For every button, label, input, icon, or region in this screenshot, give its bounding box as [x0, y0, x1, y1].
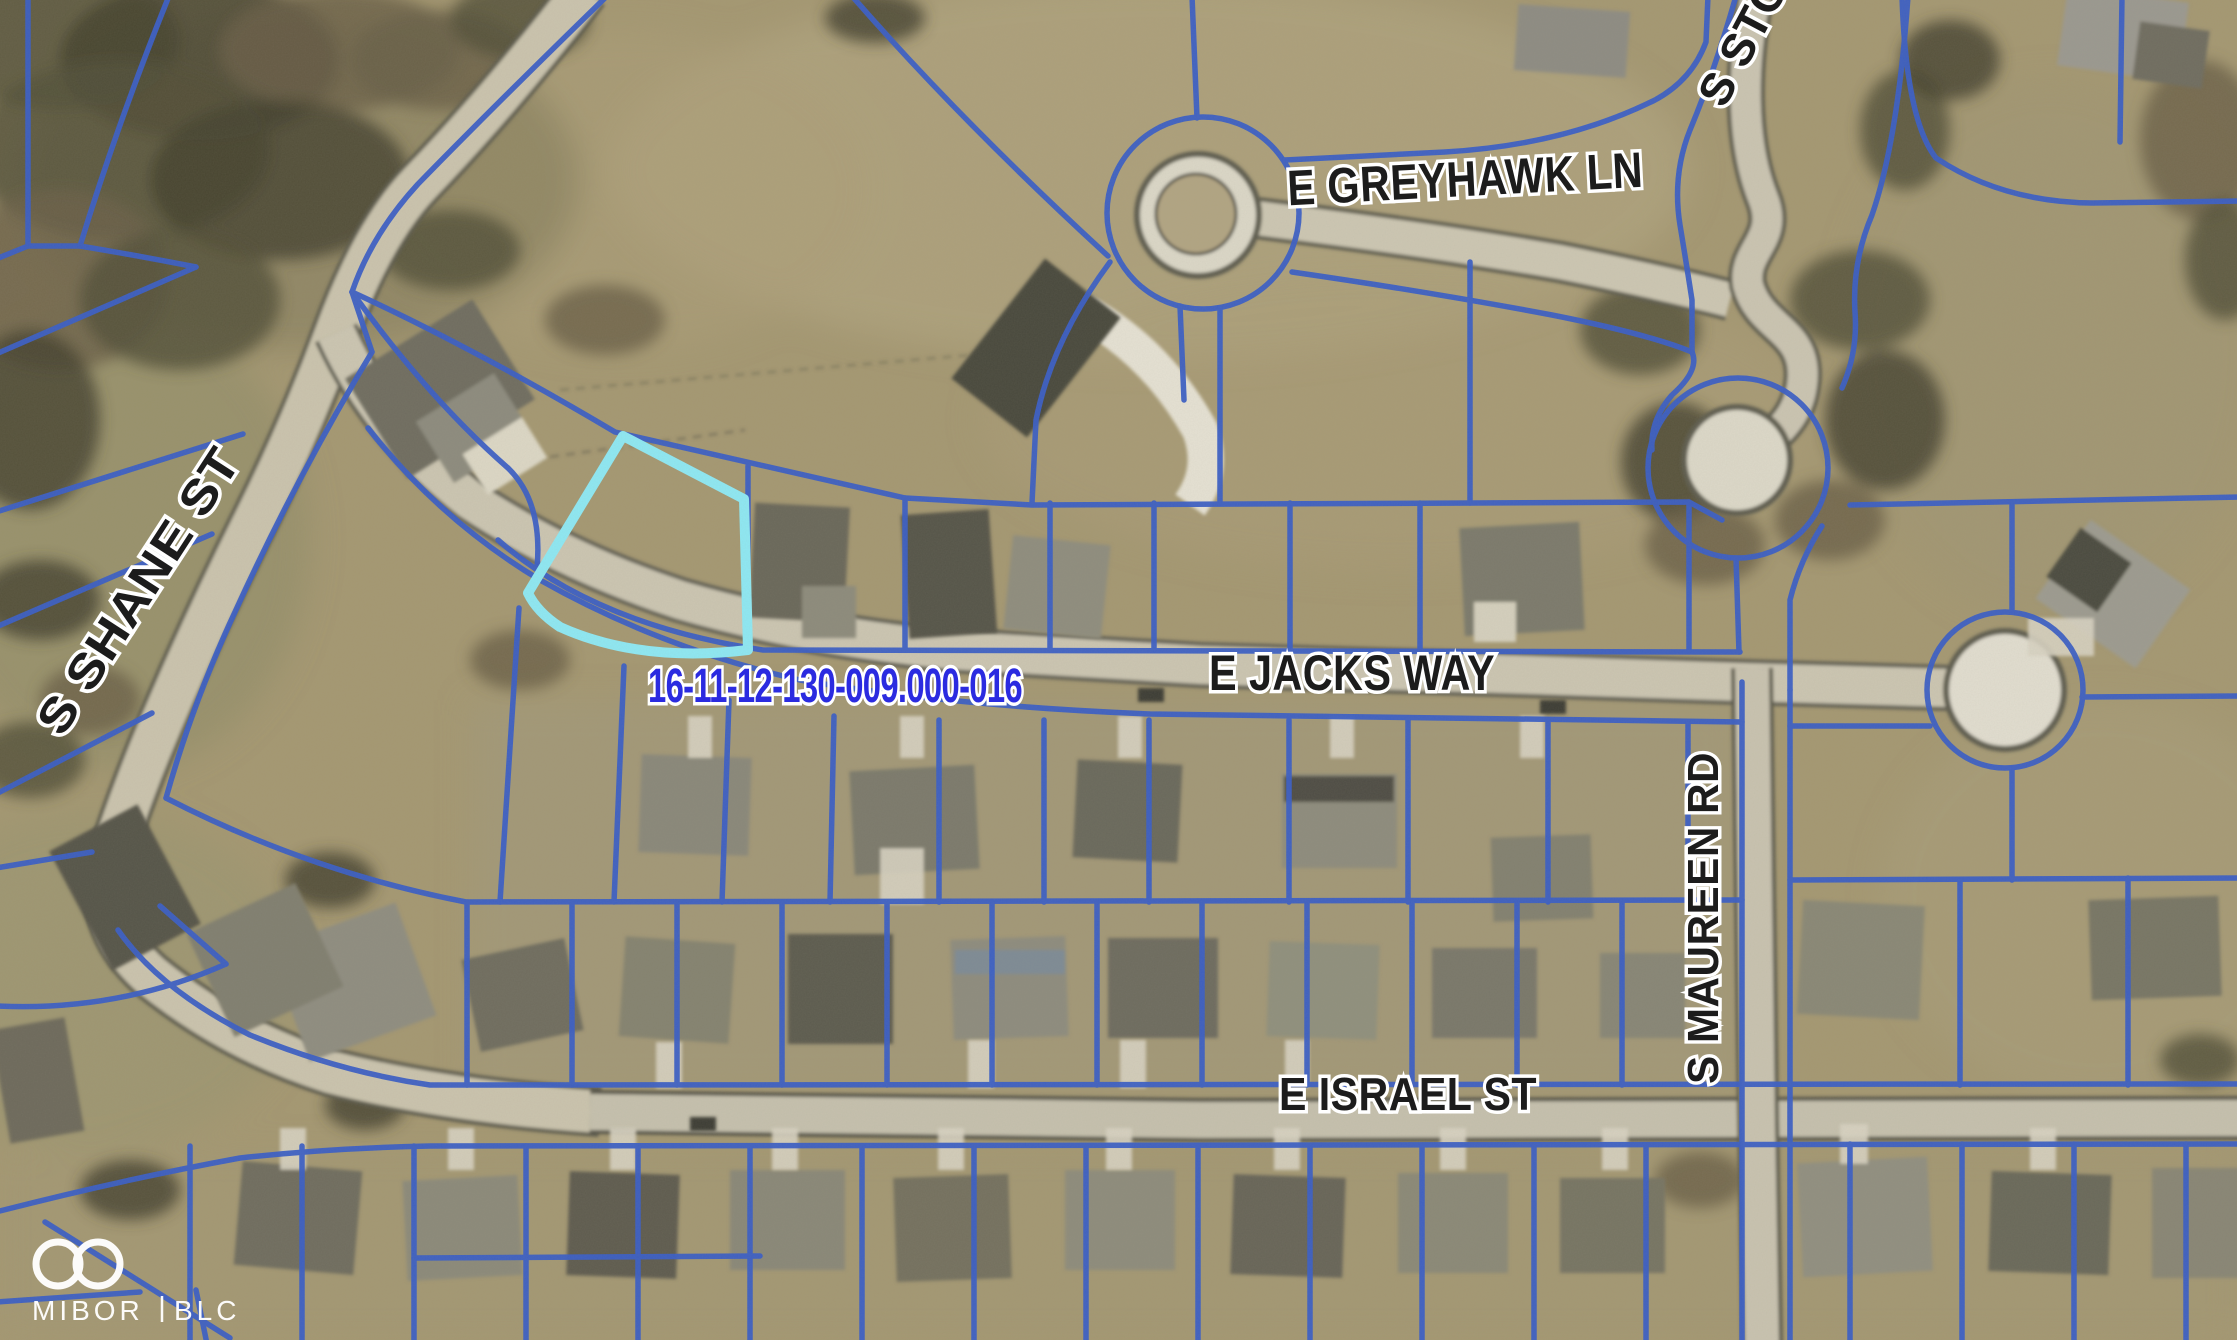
street-label-israel: E ISRAEL ST: [1279, 1068, 1537, 1120]
logo-text-blc: BLC: [174, 1295, 240, 1326]
logo-text-mibor: MIBOR: [32, 1295, 144, 1326]
parcel-id-label: 16-11-12-130-009.000-016: [648, 660, 1022, 713]
street-label-jacks: E JACKS WAY: [1209, 645, 1495, 701]
grain-overlay: [0, 0, 2237, 1340]
aerial-map-canvas: 16-11-12-130-009.000-016 E GREYHAWK LNS …: [0, 0, 2237, 1340]
street-label-maureen: S MAUREEN RD: [1679, 752, 1728, 1084]
map-viewport: 16-11-12-130-009.000-016 E GREYHAWK LNS …: [0, 0, 2237, 1340]
